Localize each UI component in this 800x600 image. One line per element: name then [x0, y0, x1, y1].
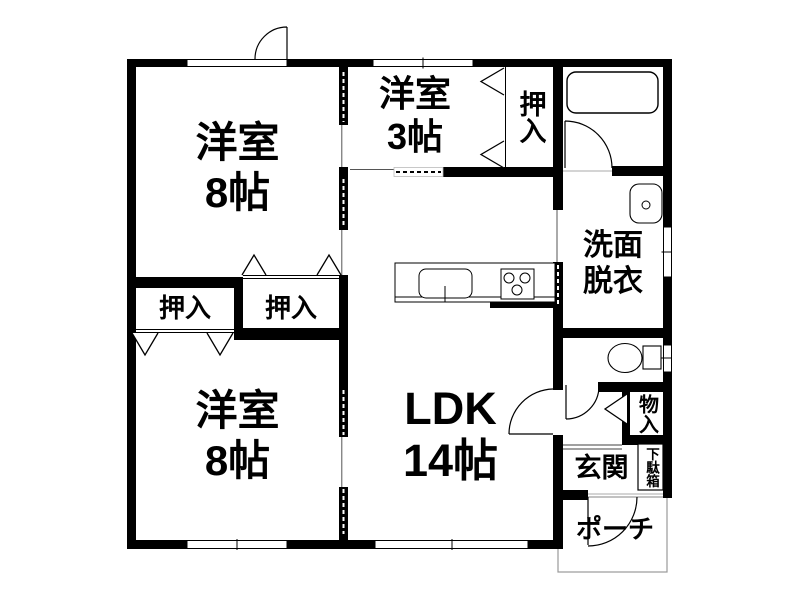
folding-door-mark: [317, 255, 341, 275]
room-label-entrance: 玄関: [563, 452, 640, 484]
room-label-western-room-small: 洋室 3帖: [350, 72, 480, 158]
folding-door-mark: [481, 68, 504, 95]
room-label-shoe-cabinet: 下駄箱: [642, 446, 660, 489]
room-label-closet-mid-left: 押入: [136, 293, 234, 324]
folding-door-mark: [481, 141, 504, 168]
door-arc-toilet: [566, 385, 599, 419]
toilet-tank-icon: [643, 346, 661, 369]
wall-segment: [287, 59, 373, 67]
window-top-left: [187, 60, 287, 67]
wall-segment: [127, 59, 136, 549]
wall-segment: [234, 277, 243, 340]
wall-segment: [234, 328, 348, 340]
bathtub-icon: [567, 72, 658, 113]
washbasin-drain-icon: [642, 201, 650, 209]
wall-segment: [127, 277, 243, 288]
wall-segment: [473, 59, 672, 67]
room-label-western-room-bottom: 洋室 8帖: [136, 386, 339, 487]
folding-door-mark: [242, 255, 266, 275]
wall-segment: [528, 540, 563, 549]
wall-segment: [563, 490, 588, 500]
wall-segment: [612, 166, 667, 176]
room-label-ldk: LDK 14帖: [348, 383, 553, 487]
door-arc-top-exterior: [255, 27, 287, 59]
wall-segment: [553, 59, 563, 210]
wall-segment: [553, 435, 563, 540]
folding-door-mark: [207, 333, 233, 355]
toilet-icon: [608, 344, 642, 373]
room-label-washroom: 洗面 脱衣: [563, 228, 663, 300]
wall-segment: [127, 540, 187, 549]
stove-burner-icon: [504, 273, 514, 283]
wall-segment: [443, 167, 553, 177]
stove-burner-icon: [520, 273, 530, 283]
room-label-closet-upper-right: 押入: [517, 86, 545, 148]
wall-segment: [287, 540, 375, 549]
wall-segment: [663, 59, 672, 227]
room-label-closet-mid-right: 押入: [243, 293, 339, 324]
room-label-western-room-top: 洋室 8帖: [136, 118, 339, 219]
door-arc-bath: [565, 121, 612, 168]
folding-door-mark: [605, 394, 627, 424]
wall-segment: [563, 328, 667, 338]
stove-burner-icon: [512, 285, 522, 295]
floorplan: 洋室 8帖 洋室 3帖 押入 洗面 脱衣 押入 押入 洋室 8帖 LDK 14帖…: [0, 0, 800, 600]
room-label-storage: 物入: [635, 391, 659, 437]
room-label-porch: ポーチ: [563, 514, 667, 545]
wall-segment: [339, 167, 348, 230]
